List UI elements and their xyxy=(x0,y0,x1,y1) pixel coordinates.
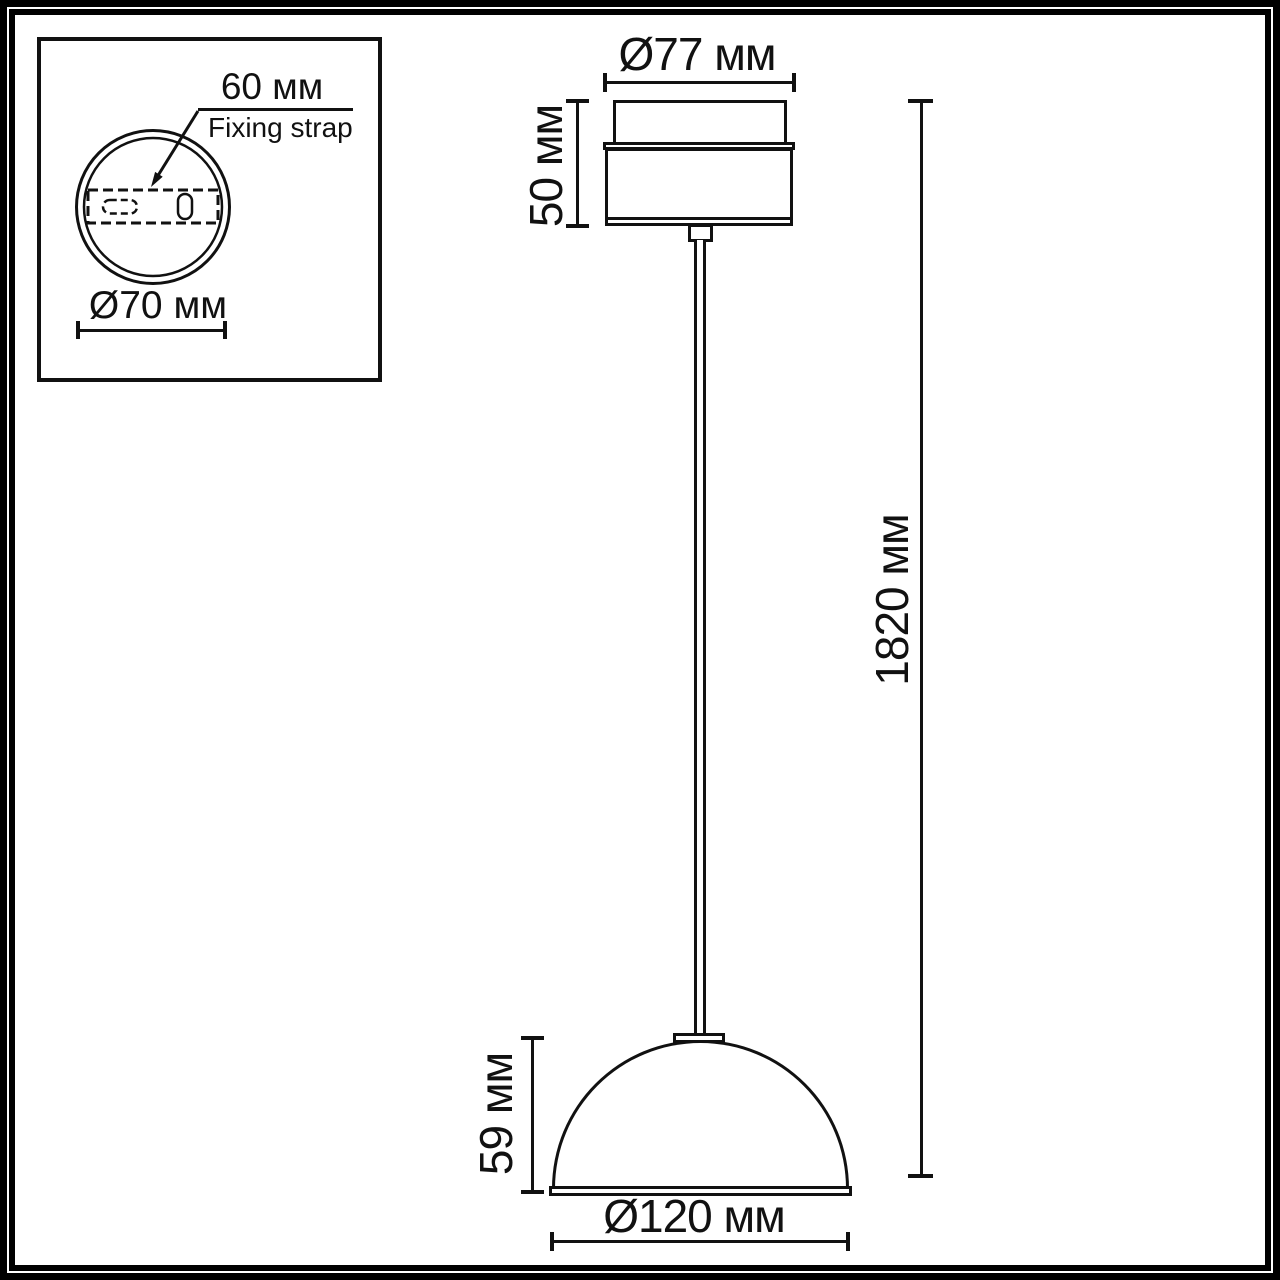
canopy-top-cup xyxy=(613,100,787,145)
canopy-height-dim-line xyxy=(576,101,579,227)
overall-height-dim-line xyxy=(920,101,923,1178)
canopy-diameter-dim-line xyxy=(605,81,795,84)
shade-dim-tick-right xyxy=(846,1232,850,1251)
strap-width-dim-label: 60 мм xyxy=(221,66,323,108)
shade-height-tick-top xyxy=(521,1036,544,1040)
base-dim-tick-left xyxy=(76,321,80,339)
base-diameter-dim-label: Ø70 мм xyxy=(89,284,227,328)
shade-diameter-dim-line xyxy=(552,1240,850,1243)
overall-height-dim-label: 1820 мм xyxy=(865,514,919,685)
shade-height-dim-line xyxy=(531,1038,534,1194)
shade-height-dim-label: 59 мм xyxy=(469,1053,523,1175)
overall-height-tick-top xyxy=(908,99,933,103)
canopy-bottom-seam-line xyxy=(608,217,790,220)
canopy-body xyxy=(605,148,793,226)
shade-dim-tick-left xyxy=(550,1232,554,1251)
fixing-strap-outline xyxy=(88,190,218,223)
pendant-lamp-technical-drawing: 60 мм Fixing strap Ø70 мм Ø77 мм 50 мм 1… xyxy=(0,0,1280,1280)
suspension-cable xyxy=(694,240,706,1040)
canopy-height-dim-label: 50 мм xyxy=(519,105,573,227)
overall-height-tick-bottom xyxy=(908,1174,933,1178)
leader-line xyxy=(154,111,198,182)
canopy-dim-tick-left xyxy=(603,73,607,92)
fixing-strap-label: Fixing strap xyxy=(208,112,353,144)
canopy-height-tick-top xyxy=(566,99,589,103)
base-diameter-dim-line xyxy=(78,329,227,332)
canopy-dim-tick-right xyxy=(792,73,796,92)
shade-height-tick-bottom xyxy=(521,1190,544,1194)
leader-arrowhead-icon xyxy=(151,172,163,187)
shade-diameter-dim-label: Ø120 мм xyxy=(603,1189,785,1243)
canopy-diameter-dim-label: Ø77 мм xyxy=(619,27,776,81)
leader-shoulder-line xyxy=(198,108,353,111)
base-dim-tick-right xyxy=(223,321,227,339)
